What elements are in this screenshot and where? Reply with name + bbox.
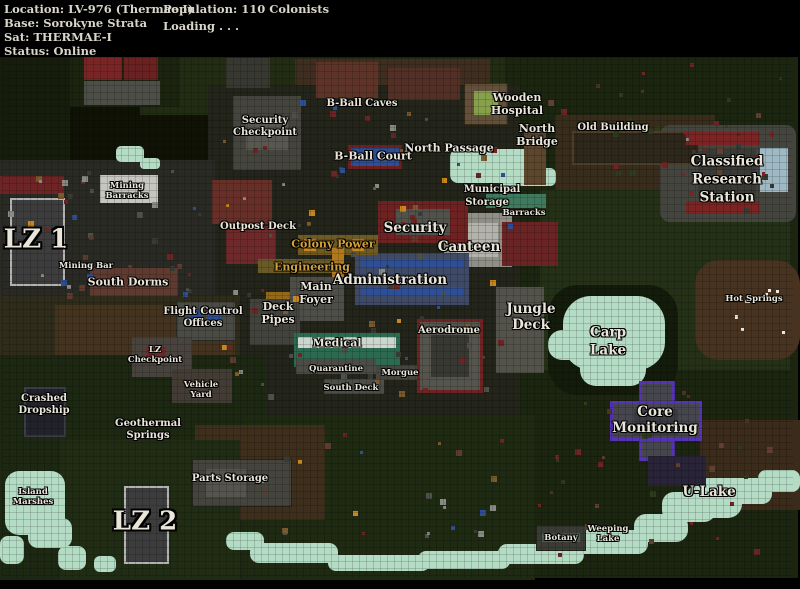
building-speck — [226, 204, 229, 207]
structure — [496, 287, 544, 373]
structure — [250, 299, 300, 345]
building-speck — [307, 222, 311, 226]
building-speck — [365, 116, 370, 121]
building-speck — [26, 246, 30, 250]
structure — [474, 91, 498, 115]
building-speck — [717, 148, 723, 154]
building-speck — [420, 316, 424, 320]
building-speck — [441, 291, 446, 296]
building-speck — [725, 125, 728, 128]
building-speck — [342, 347, 348, 353]
building-speck — [699, 148, 702, 151]
building-speck — [152, 238, 158, 244]
building-speck — [614, 164, 619, 169]
building-speck — [466, 324, 469, 327]
terrain-patch — [0, 57, 70, 167]
building-speck — [174, 279, 178, 283]
structure — [304, 239, 316, 251]
building-speck — [268, 394, 274, 400]
building-speck — [397, 319, 401, 323]
building-speck — [39, 180, 42, 183]
building-speck — [325, 443, 331, 449]
building-speck — [655, 126, 660, 131]
water-body — [140, 158, 160, 169]
structure — [361, 259, 463, 268]
building-speck — [89, 235, 94, 240]
structure — [10, 198, 65, 286]
building-speck — [491, 147, 497, 153]
building-speck — [649, 539, 654, 544]
building-speck — [418, 212, 422, 216]
building-speck — [379, 269, 385, 275]
sat-text: Sat: THERMAE-I — [4, 30, 112, 44]
structure — [24, 387, 66, 437]
building-speck — [598, 462, 603, 467]
building-speck — [756, 155, 762, 161]
structure — [206, 469, 246, 497]
building-speck — [58, 193, 64, 199]
structure — [90, 268, 178, 296]
building-speck — [298, 353, 302, 357]
building-speck — [405, 357, 408, 360]
building-speck — [386, 265, 389, 268]
building-speck — [369, 321, 375, 327]
building-speck — [236, 308, 242, 314]
building-speck — [478, 531, 484, 537]
status-header: Location: LV-976 (Thermae I) Base: Sorok… — [0, 0, 800, 57]
structure — [698, 149, 756, 199]
building-speck — [754, 549, 760, 555]
building-speck — [253, 148, 258, 153]
building-speck — [193, 207, 196, 210]
building-speck — [642, 72, 645, 75]
water-body — [94, 556, 116, 572]
structure — [176, 301, 236, 341]
building-speck — [607, 409, 612, 414]
structure — [361, 287, 463, 296]
building-speck — [682, 391, 686, 395]
building-speck — [451, 526, 455, 530]
building-speck — [261, 383, 264, 386]
structure — [296, 359, 376, 374]
building-speck — [90, 189, 94, 193]
building-speck — [375, 380, 379, 384]
building-speck — [87, 171, 91, 175]
building-speck — [684, 131, 688, 135]
base-text: Base: Sorokyne Strata — [4, 16, 147, 30]
building-speck — [284, 456, 290, 462]
structure — [124, 486, 169, 564]
building-speck — [186, 288, 189, 291]
building-speck — [289, 354, 293, 358]
building-speck — [401, 222, 405, 226]
building-speck — [500, 439, 504, 443]
building-speck — [83, 255, 88, 260]
building-speck — [682, 173, 685, 176]
building-speck — [442, 178, 447, 183]
building-speck — [342, 383, 347, 388]
building-speck — [741, 328, 744, 331]
building-speck — [300, 100, 306, 106]
structure — [348, 145, 402, 169]
structure — [208, 309, 221, 320]
structure — [226, 58, 270, 88]
structure — [486, 194, 546, 208]
building-speck — [558, 553, 562, 557]
structure — [84, 81, 160, 105]
water-body — [548, 330, 588, 360]
building-speck — [400, 206, 406, 212]
structure — [316, 62, 378, 98]
building-speck — [233, 290, 238, 295]
building-speck — [427, 532, 430, 535]
water-body — [0, 536, 24, 564]
structure — [431, 335, 469, 377]
building-speck — [362, 532, 365, 535]
building-speck — [550, 491, 553, 494]
building-speck — [67, 293, 73, 299]
building-speck — [481, 155, 487, 161]
structure — [100, 175, 158, 203]
building-speck — [616, 171, 621, 176]
building-speck — [471, 198, 476, 203]
building-speck — [443, 506, 446, 509]
building-speck — [330, 111, 336, 117]
building-speck — [641, 90, 644, 93]
building-speck — [293, 296, 299, 302]
structure — [188, 309, 201, 320]
building-speck — [596, 84, 600, 88]
building-speck — [490, 280, 496, 286]
building-speck — [650, 491, 656, 497]
building-speck — [82, 176, 88, 182]
building-speck — [744, 475, 748, 479]
structure — [352, 239, 364, 251]
water-body — [250, 543, 338, 563]
building-speck — [501, 173, 505, 177]
building-speck — [67, 285, 71, 289]
building-speck — [388, 284, 393, 289]
building-speck — [45, 228, 49, 232]
water-body — [328, 555, 430, 571]
building-speck — [779, 77, 782, 80]
building-speck — [776, 290, 779, 293]
building-speck — [260, 479, 264, 483]
building-speck — [68, 194, 73, 199]
structure — [686, 132, 760, 145]
building-speck — [167, 254, 173, 260]
building-speck — [170, 266, 175, 271]
building-speck — [62, 180, 68, 186]
structure — [84, 56, 122, 80]
building-speck — [10, 228, 15, 233]
building-speck — [239, 370, 243, 374]
building-speck — [714, 121, 719, 126]
building-speck — [630, 170, 636, 176]
building-speck — [735, 315, 738, 318]
building-speck — [425, 118, 428, 121]
building-speck — [396, 352, 401, 357]
building-speck — [282, 183, 285, 186]
building-speck — [287, 300, 293, 306]
building-speck — [390, 125, 396, 131]
building-speck — [228, 345, 232, 349]
water-body — [580, 350, 646, 386]
water-body — [226, 532, 264, 550]
building-speck — [263, 146, 267, 150]
building-speck — [64, 200, 68, 204]
structure — [212, 180, 272, 224]
building-speck — [695, 153, 699, 157]
building-speck — [561, 480, 565, 484]
building-speck — [282, 528, 288, 534]
building-speck — [602, 456, 605, 459]
structure — [542, 533, 580, 542]
building-speck — [556, 459, 559, 462]
building-speck — [307, 280, 311, 284]
building-speck — [490, 505, 496, 511]
structure — [634, 409, 678, 435]
building-speck — [768, 289, 771, 292]
building-speck — [687, 395, 690, 398]
building-speck — [384, 100, 390, 106]
building-speck — [360, 451, 363, 454]
building-speck — [690, 63, 694, 67]
building-speck — [613, 131, 619, 137]
building-speck — [727, 98, 731, 102]
building-speck — [353, 511, 358, 516]
building-speck — [412, 236, 418, 242]
building-speck — [426, 493, 432, 499]
building-speck — [676, 463, 680, 467]
building-speck — [137, 212, 143, 218]
building-speck — [711, 141, 715, 145]
structure — [572, 131, 700, 165]
building-speck — [482, 356, 485, 359]
building-speck — [719, 443, 724, 448]
building-speck — [456, 450, 462, 456]
structure — [172, 369, 232, 403]
building-speck — [371, 328, 376, 333]
building-speck — [480, 510, 486, 516]
building-speck — [410, 215, 415, 220]
water-body — [418, 551, 510, 569]
building-speck — [423, 388, 428, 393]
building-speck — [736, 144, 741, 149]
building-speck — [662, 162, 668, 168]
water-body — [28, 518, 72, 548]
building-speck — [292, 112, 298, 118]
loading-text: Loading . . . — [163, 19, 239, 33]
building-speck — [508, 224, 513, 229]
building-speck — [309, 210, 315, 216]
structure — [524, 125, 546, 185]
building-speck — [8, 211, 14, 217]
structure — [0, 176, 64, 194]
building-speck — [247, 293, 251, 297]
building-speck — [437, 306, 440, 309]
building-speck — [61, 280, 67, 286]
building-speck — [413, 205, 418, 210]
building-speck — [394, 283, 400, 289]
building-speck — [298, 224, 301, 227]
building-speck — [467, 343, 472, 348]
building-speck — [744, 208, 750, 214]
building-speck — [399, 391, 405, 397]
building-speck — [692, 150, 696, 154]
building-speck — [619, 93, 623, 97]
building-speck — [709, 466, 715, 472]
building-speck — [222, 345, 227, 350]
building-speck — [368, 374, 373, 379]
building-speck — [762, 172, 765, 175]
building-speck — [79, 285, 85, 291]
building-speck — [646, 432, 652, 438]
building-speck — [584, 402, 587, 405]
building-speck — [391, 133, 396, 138]
building-speck — [183, 292, 188, 297]
building-speck — [770, 184, 774, 188]
building-speck — [261, 289, 264, 292]
building-speck — [484, 387, 489, 392]
building-speck — [476, 173, 481, 178]
building-speck — [498, 340, 504, 346]
building-speck — [745, 419, 749, 423]
building-speck — [738, 446, 741, 449]
building-speck — [575, 449, 581, 455]
building-speck — [440, 499, 446, 505]
structure — [146, 347, 166, 361]
building-speck — [72, 215, 77, 220]
structure — [648, 456, 706, 486]
building-speck — [28, 221, 34, 227]
building-speck — [595, 504, 599, 508]
building-speck — [177, 264, 182, 269]
colony-map-canvas[interactable]: SecurityCheckpointB-Ball CavesB-Ball Cou… — [0, 0, 800, 589]
building-speck — [152, 202, 158, 208]
building-speck — [223, 140, 226, 143]
building-speck — [538, 504, 541, 507]
building-speck — [769, 132, 774, 137]
building-speck — [627, 119, 633, 125]
building-speck — [548, 100, 554, 106]
building-speck — [230, 357, 236, 363]
water-body — [58, 546, 86, 570]
structure — [124, 56, 158, 80]
building-speck — [703, 148, 706, 151]
building-speck — [648, 129, 653, 134]
building-speck — [767, 447, 773, 453]
building-speck — [689, 191, 694, 196]
building-speck — [340, 168, 345, 173]
building-speck — [460, 358, 466, 364]
building-speck — [263, 489, 267, 493]
building-speck — [336, 175, 339, 178]
building-speck — [188, 273, 191, 276]
population-text: Population: 110 Colonists — [163, 2, 329, 16]
building-speck — [686, 138, 689, 141]
structure — [246, 118, 288, 150]
building-speck — [407, 112, 411, 116]
building-speck — [333, 106, 337, 110]
status-text: Status: Online — [4, 44, 96, 58]
building-speck — [351, 252, 356, 257]
building-speck — [235, 372, 239, 376]
building-speck — [243, 197, 246, 200]
building-speck — [491, 476, 497, 482]
building-speck — [782, 331, 785, 334]
building-speck — [690, 522, 693, 525]
building-speck — [400, 149, 403, 152]
building-speck — [87, 274, 93, 280]
building-speck — [373, 187, 376, 190]
building-speck — [171, 170, 174, 173]
building-speck — [457, 163, 460, 166]
building-speck — [561, 109, 567, 115]
terrain-patch — [695, 260, 800, 360]
building-speck — [438, 442, 441, 445]
building-speck — [716, 537, 719, 540]
building-speck — [730, 502, 734, 506]
building-speck — [745, 300, 748, 303]
building-speck — [737, 133, 740, 136]
building-speck — [41, 274, 44, 277]
building-speck — [347, 385, 352, 390]
building-speck — [343, 433, 347, 437]
building-speck — [341, 374, 347, 380]
building-speck — [717, 170, 722, 175]
building-speck — [298, 460, 302, 464]
building-speck — [765, 293, 768, 296]
building-speck — [381, 156, 386, 161]
building-speck — [198, 213, 201, 216]
building-speck — [128, 265, 132, 269]
building-speck — [756, 113, 761, 118]
building-speck — [252, 308, 258, 314]
building-speck — [411, 219, 417, 225]
building-speck — [418, 253, 424, 259]
building-speck — [283, 309, 288, 314]
building-speck — [585, 524, 591, 530]
structure — [388, 68, 460, 100]
building-speck — [269, 234, 272, 237]
